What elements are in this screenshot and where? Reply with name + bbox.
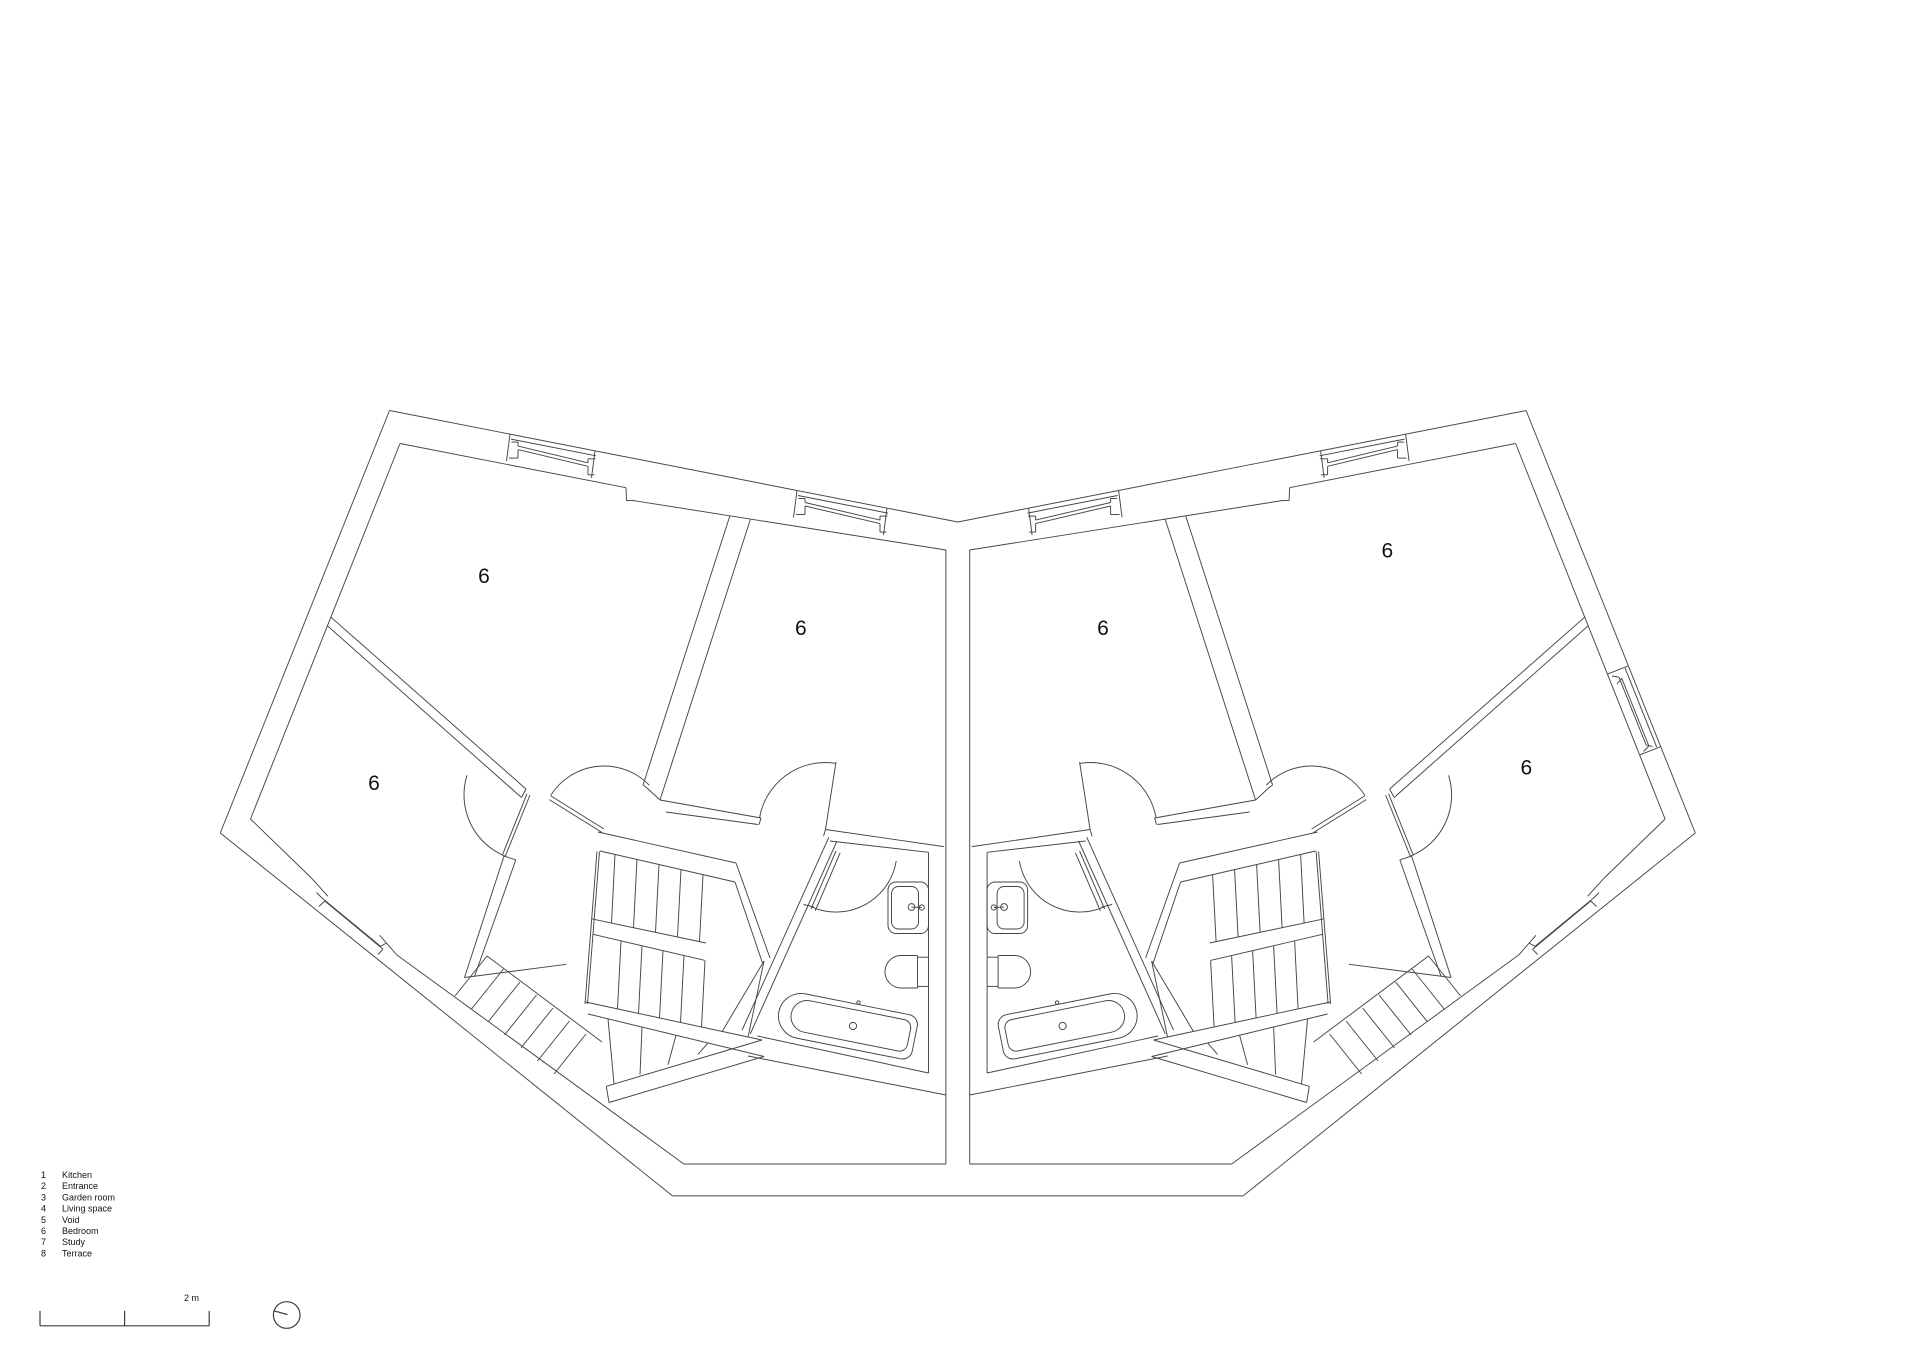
svg-text:6: 6 xyxy=(41,1226,46,1236)
svg-text:Study: Study xyxy=(62,1237,86,1247)
svg-text:6: 6 xyxy=(1520,757,1532,780)
svg-text:1: 1 xyxy=(41,1170,46,1180)
svg-text:2: 2 xyxy=(41,1181,46,1191)
svg-text:Entrance: Entrance xyxy=(62,1181,98,1191)
svg-text:6: 6 xyxy=(368,772,380,795)
svg-text:8: 8 xyxy=(41,1248,46,1258)
svg-text:2 m: 2 m xyxy=(184,1293,199,1303)
svg-text:Void: Void xyxy=(62,1215,80,1225)
svg-text:6: 6 xyxy=(795,617,807,640)
svg-text:4: 4 xyxy=(41,1204,46,1214)
svg-text:Garden room: Garden room xyxy=(62,1192,115,1202)
svg-text:6: 6 xyxy=(478,565,490,588)
svg-text:6: 6 xyxy=(1097,617,1109,640)
svg-text:Terrace: Terrace xyxy=(62,1248,92,1258)
svg-text:5: 5 xyxy=(41,1215,46,1225)
svg-text:7: 7 xyxy=(41,1237,46,1247)
svg-text:6: 6 xyxy=(1382,540,1394,563)
svg-text:3: 3 xyxy=(41,1192,46,1202)
svg-text:Kitchen: Kitchen xyxy=(62,1170,92,1180)
svg-text:Bedroom: Bedroom xyxy=(62,1226,99,1236)
svg-text:Living space: Living space xyxy=(62,1204,112,1214)
